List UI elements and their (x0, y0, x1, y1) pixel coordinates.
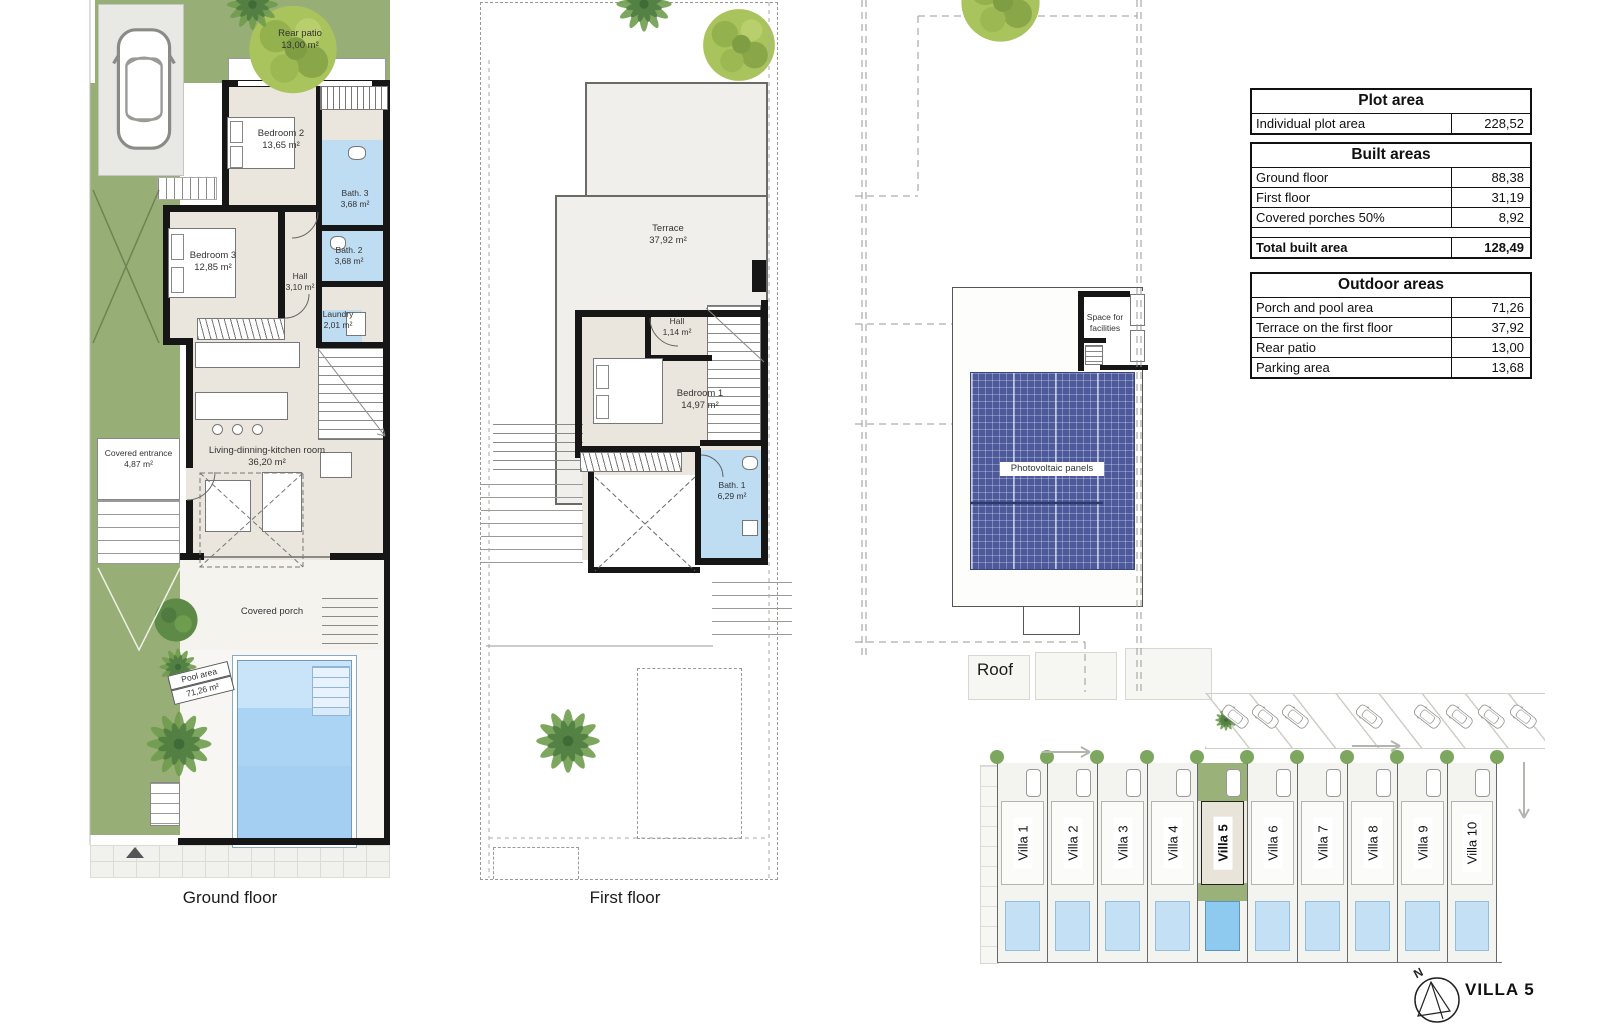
table-row: Porch and pool area71,26 (1252, 297, 1530, 317)
sink-icon (742, 520, 758, 536)
villa-pool (1055, 901, 1090, 951)
villa-label: Villa 1 (1013, 817, 1032, 868)
car-icon (1426, 769, 1441, 797)
room-label-hall-first: Hall1,14 m² (652, 316, 702, 338)
villa-label: Villa 2 (1063, 817, 1082, 868)
villa-label: Villa 8 (1363, 817, 1382, 868)
table-title: Outdoor areas (1252, 274, 1530, 297)
villa-label: Villa 9 (1413, 817, 1432, 868)
villa-label: Villa 5 (1213, 816, 1232, 869)
pool-steps (312, 666, 350, 716)
label-photovoltaic-panels: Photovoltaic panels (1000, 462, 1104, 476)
stool-icon (252, 424, 263, 435)
facilities-closet (1130, 294, 1145, 326)
table-spacer-row (1252, 227, 1530, 237)
villa-label: Villa 4 (1163, 817, 1182, 868)
car-icon (1026, 769, 1041, 797)
site-villa-5-highlighted: Villa 5 (1197, 763, 1247, 963)
car-icon (1076, 769, 1091, 797)
built-areas-table: Built areas Ground floor88,38 First floo… (1250, 142, 1532, 259)
villa-pool (1455, 901, 1489, 951)
kitchen-counter (195, 342, 300, 368)
sofa (262, 472, 302, 532)
site-villa-4: Villa 4 (1147, 763, 1197, 963)
stairs-first (707, 305, 761, 445)
terrace-kitchenette (752, 260, 766, 292)
plot-area-table: Plot area Individual plot area228,52 (1250, 88, 1532, 135)
villa-pool (1155, 901, 1190, 951)
table-row: Covered porches 50%8,92 (1252, 207, 1530, 227)
car-icon (1326, 769, 1341, 797)
site-villa-3: Villa 3 (1097, 763, 1147, 963)
compass-north-label: N (1411, 965, 1425, 981)
room-label-rear-patio: Rear patio13,00 m² (250, 28, 350, 53)
terrace-floor (585, 82, 768, 197)
villa-label: Villa 7 (1313, 817, 1332, 868)
table-title: Plot area (1252, 90, 1530, 113)
car-icon (1226, 769, 1241, 797)
ground-floor-label: Ground floor (150, 888, 310, 908)
table-total-row: Total built area128,49 (1252, 237, 1530, 257)
room-label-hall-ground: Hall3,10 m² (275, 271, 325, 293)
villa-pool (1405, 901, 1440, 951)
car-icon (1176, 769, 1191, 797)
site-villa-2: Villa 2 (1047, 763, 1097, 963)
room-label-bath1: Bath. 16,29 m² (702, 480, 762, 502)
void-double-height (594, 475, 695, 571)
bedroom2-wardrobe (320, 86, 388, 110)
villa-pool (1005, 901, 1040, 951)
villa-pool (1205, 901, 1240, 951)
table-row: Parking area13,68 (1252, 357, 1530, 377)
room-label-covered-entrance: Covered entrance4,87 m² (102, 448, 175, 470)
bedroom3-wardrobe (197, 318, 285, 340)
room-label-covered-porch: Covered porch (222, 606, 322, 618)
neighbor-building (1125, 648, 1212, 700)
room-label-bedroom2: Bedroom 213,65 m² (236, 128, 326, 153)
roof-label: Roof (955, 660, 1035, 680)
garden-steps (150, 782, 180, 826)
entrance-steps (97, 500, 180, 564)
porch-outline-dashed (493, 847, 579, 879)
room-label-terrace: Terrace37,92 m² (618, 223, 718, 248)
sheet-title: VILLA 5 (1465, 980, 1600, 1000)
outdoor-areas-table: Outdoor areas Porch and pool area71,26 T… (1250, 272, 1532, 379)
table-row: Rear patio13,00 (1252, 337, 1530, 357)
table-row: Individual plot area228,52 (1252, 113, 1530, 133)
facilities-hatch (1085, 345, 1103, 365)
round-tree-icon (961, 0, 1039, 42)
room-label-bedroom1: Bedroom 114,97 m² (655, 388, 745, 413)
table-row: Terrace on the first floor37,92 (1252, 317, 1530, 337)
site-villa-1: Villa 1 (997, 763, 1047, 963)
kitchen-island (195, 392, 288, 420)
pool-outline-dashed (637, 668, 742, 839)
car-icon (1126, 769, 1141, 797)
bed-icon (593, 358, 663, 424)
villa-label: Villa 10 (1463, 814, 1482, 872)
bedroom1-wardrobe (580, 452, 682, 472)
room-label-bath3: Bath. 33,68 m² (326, 188, 384, 210)
stairs-ground (318, 347, 384, 440)
toilet-icon (742, 456, 758, 470)
villa-label: Villa 3 (1113, 817, 1132, 868)
villa-label: Villa 6 (1263, 817, 1282, 868)
room-label-bedroom3: Bedroom 312,85 m² (168, 250, 258, 275)
villa-pool (1105, 901, 1140, 951)
villa-pool (1305, 901, 1340, 951)
facilities-closet (1130, 330, 1145, 362)
car-icon (1475, 769, 1490, 797)
table-row: Ground floor88,38 (1252, 167, 1530, 187)
car-icon (1276, 769, 1291, 797)
site-villa-6: Villa 6 (1247, 763, 1297, 963)
villa-pool (1355, 901, 1390, 951)
table-title: Built areas (1252, 144, 1530, 167)
villa-pool (1255, 901, 1290, 951)
site-villa-10: Villa 10 (1447, 763, 1497, 963)
room-label-bath2: Bath. 23,68 m² (320, 245, 378, 267)
car-icon (1376, 769, 1391, 797)
parking-pad (98, 4, 184, 176)
site-villa-7: Villa 7 (1297, 763, 1347, 963)
steps-bottom-right (712, 582, 792, 644)
porch-steps (322, 598, 378, 648)
sidewalk (90, 845, 390, 878)
stool-icon (232, 424, 243, 435)
table-row: First floor31,19 (1252, 187, 1530, 207)
site-bottom-line (997, 962, 1502, 963)
first-floor-label: First floor (555, 888, 695, 908)
floorplan-sheet: Rear patio13,00 m² Bedroom 213,65 m² Bat… (0, 0, 1600, 1024)
site-villa-8: Villa 8 (1347, 763, 1397, 963)
site-villa-9: Villa 9 (1397, 763, 1447, 963)
roof-outline-tab (1023, 607, 1080, 635)
site-bushes (990, 750, 1504, 764)
dining-table (205, 480, 251, 532)
neighbor-building (1035, 652, 1117, 700)
label-space-for-facilities: Space for facilities (1082, 312, 1128, 334)
upper-porch (228, 58, 386, 81)
compass-icon (1415, 978, 1459, 1022)
room-label-living: Living-dinning-kitchen room36,20 m² (192, 445, 342, 470)
room-label-laundry: Laundry2,01 m² (312, 309, 364, 331)
terrace-steps-left (481, 484, 583, 566)
stool-icon (212, 424, 223, 435)
toilet-icon (348, 146, 366, 160)
window (238, 81, 298, 86)
street-parking (1205, 693, 1545, 749)
side-steps (157, 177, 217, 200)
pergola-slats (493, 424, 583, 477)
